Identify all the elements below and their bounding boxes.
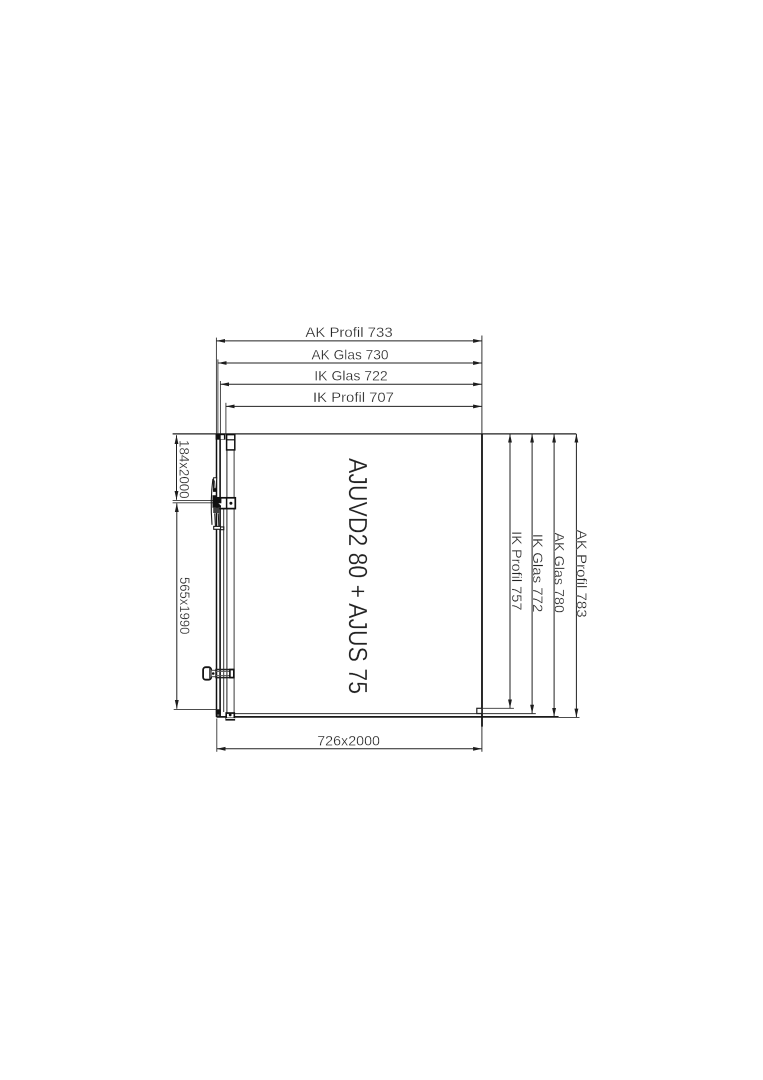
svg-text:AJUVD2 80 + AJUS 75: AJUVD2 80 + AJUS 75 (343, 458, 371, 694)
svg-text:AK Profil 783: AK Profil 783 (574, 530, 590, 618)
svg-text:184x2000: 184x2000 (177, 440, 193, 499)
svg-text:726x2000: 726x2000 (317, 733, 380, 749)
svg-text:IK Profil 757: IK Profil 757 (509, 531, 525, 611)
svg-text:IK Glas 772: IK Glas 772 (530, 534, 546, 613)
svg-text:AK Glas 730: AK Glas 730 (312, 346, 389, 362)
svg-text:IK Profil 707: IK Profil 707 (313, 389, 394, 405)
svg-text:AK Glas 780: AK Glas 780 (552, 532, 568, 613)
svg-text:565x1990: 565x1990 (177, 577, 193, 635)
svg-text:AK Profil 733: AK Profil 733 (305, 324, 393, 340)
svg-text:IK Glas 722: IK Glas 722 (314, 367, 388, 383)
